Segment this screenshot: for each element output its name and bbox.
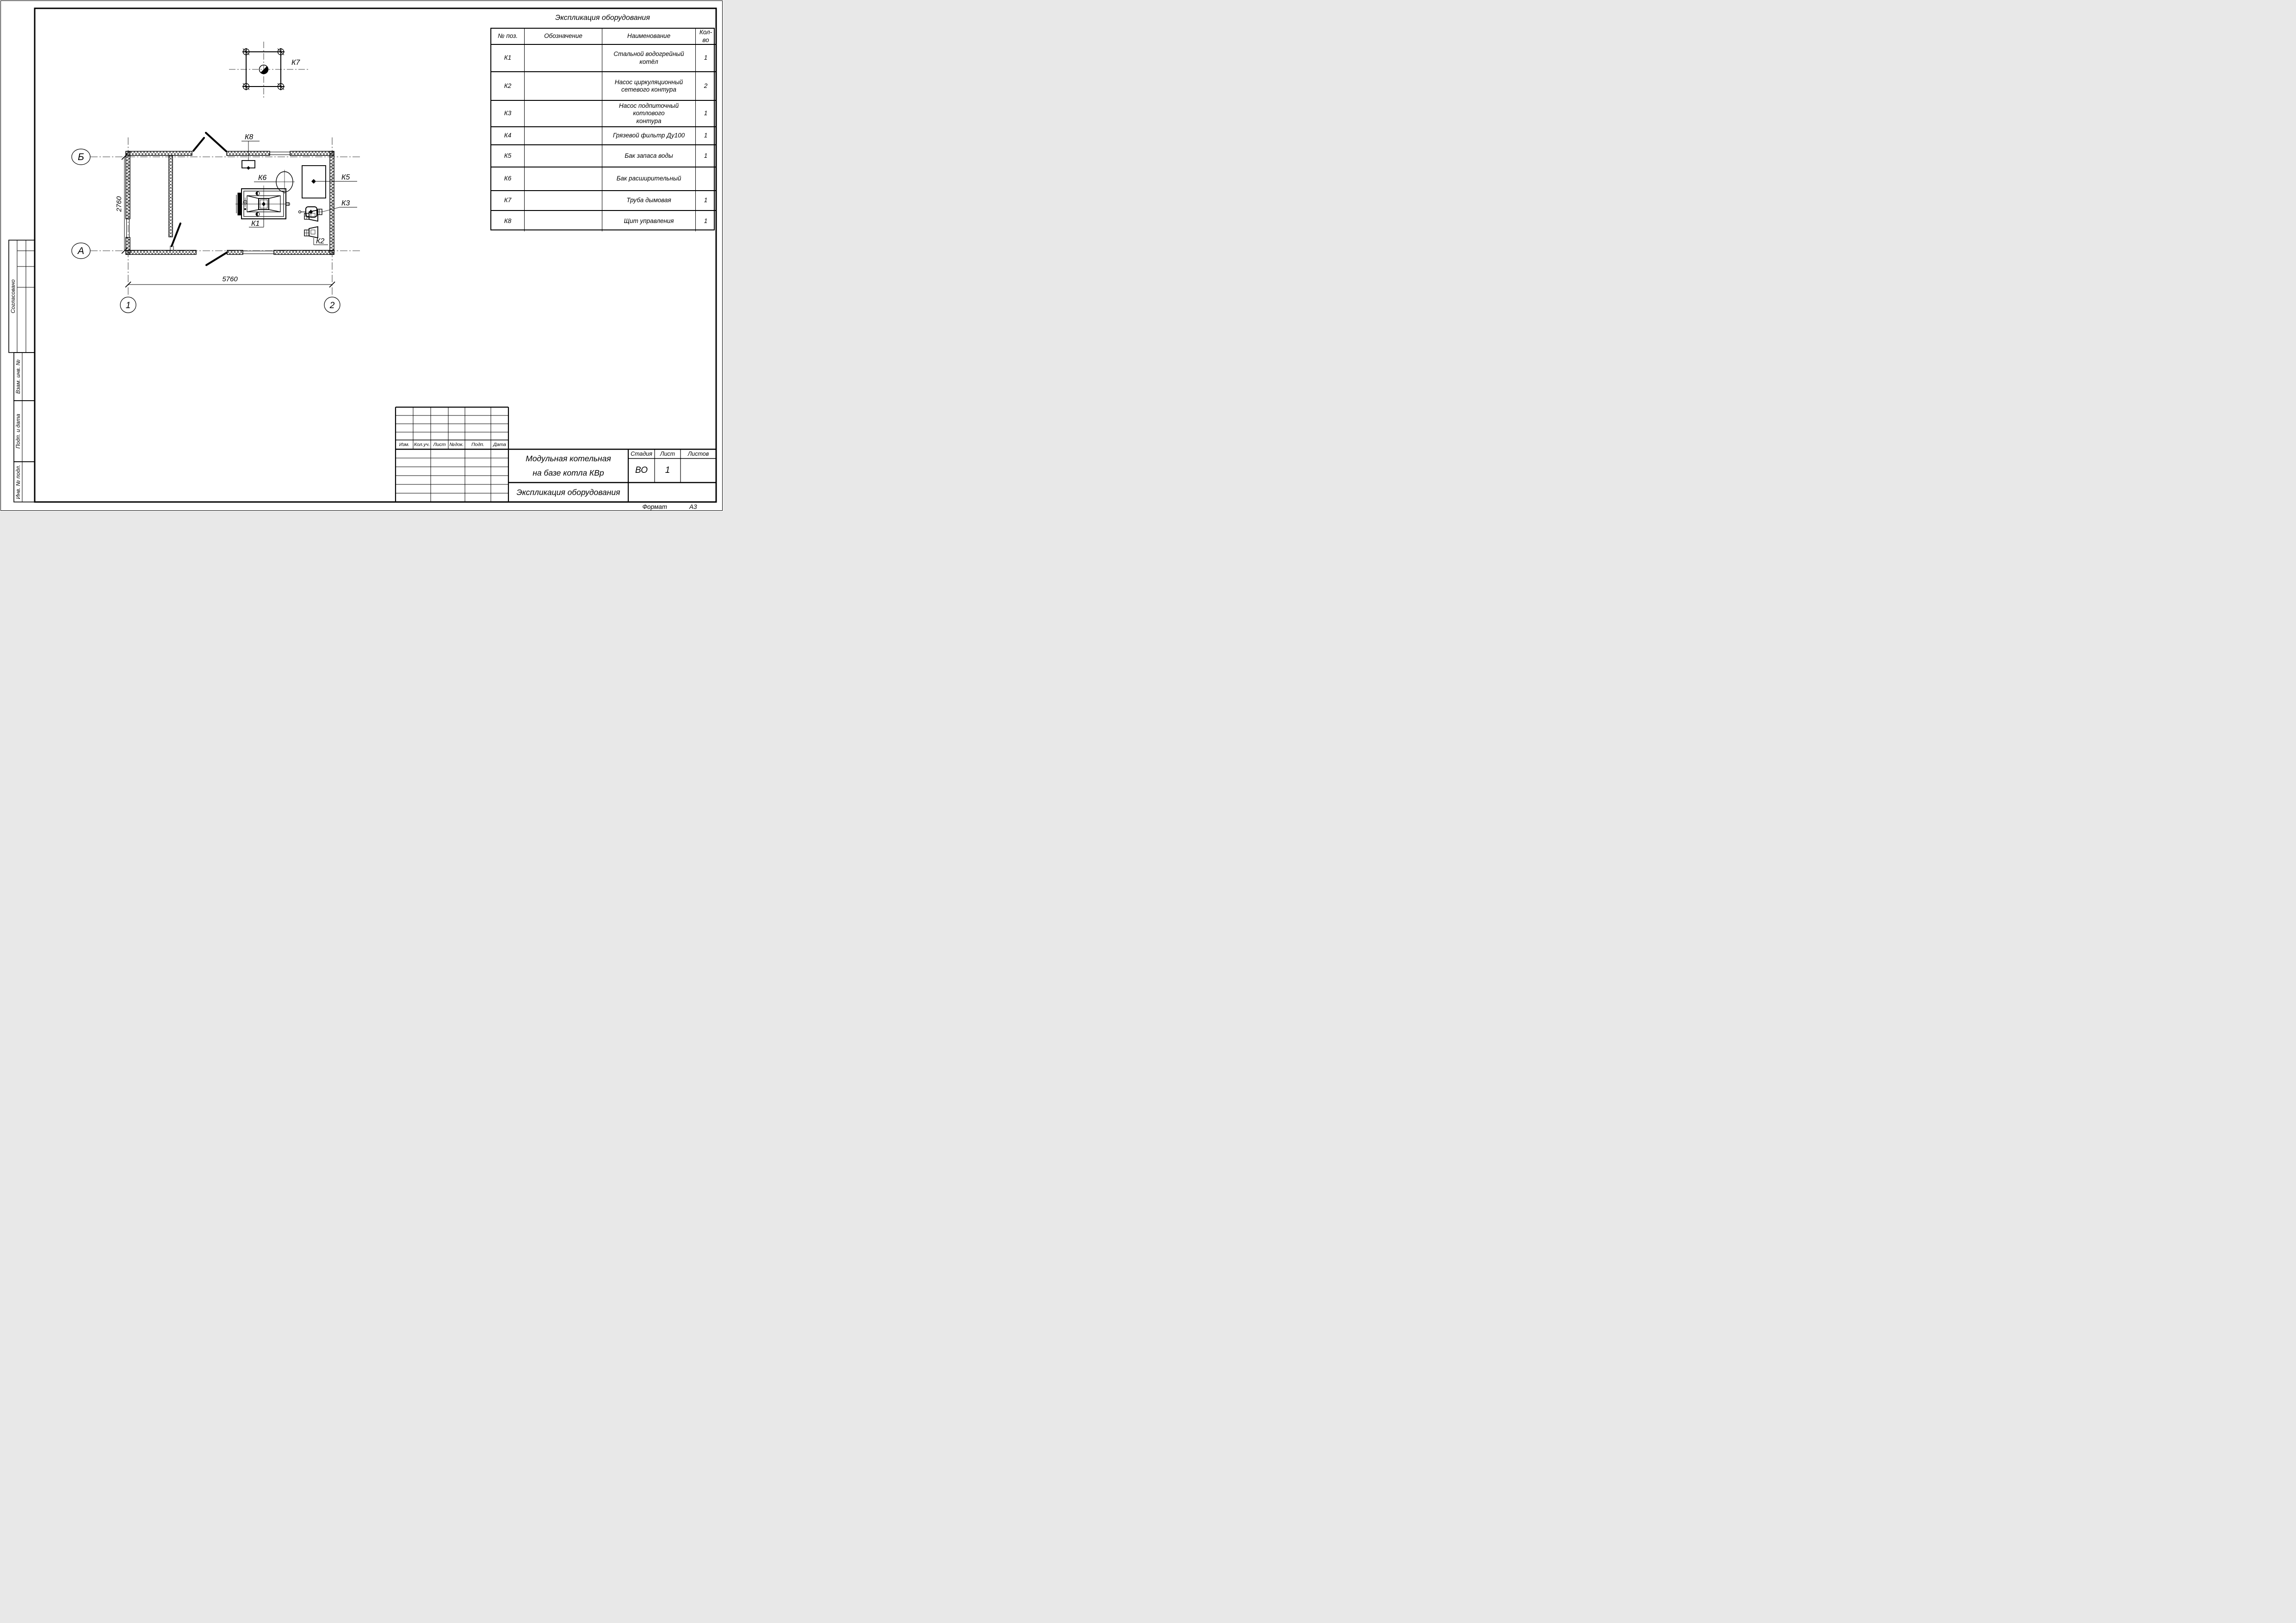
- table-row-designation: [525, 127, 602, 145]
- table-row-designation: [525, 191, 602, 211]
- svg-text:2760: 2760: [115, 196, 123, 212]
- table-row-qty: [696, 167, 716, 191]
- rev-col-koluch: Кол.уч.: [413, 440, 431, 449]
- table-row-pos: К3: [491, 101, 525, 127]
- table-row-name: Труба дымовая: [602, 191, 696, 211]
- axis-lines: [90, 137, 361, 296]
- stage-label: Стадия: [628, 449, 655, 458]
- stage-value: ВО: [628, 458, 655, 483]
- axis-label-b: Б: [78, 152, 84, 162]
- project-title-line2: на базе котла КВр: [532, 466, 604, 480]
- table-row-name: Насос циркуляционный сетевого контура: [602, 72, 696, 101]
- table-row-name: Насос подпиточный котлового контура: [602, 101, 696, 127]
- side-stamp-sign-date: Подп. и дата: [14, 401, 22, 462]
- side-stamp-agreed: Согласовано: [9, 240, 17, 353]
- table-row-qty: 1: [696, 45, 716, 72]
- col-header-pos: № поз.: [491, 29, 525, 45]
- table-row-designation: [525, 101, 602, 127]
- table-row-qty: 1: [696, 101, 716, 127]
- col-header-qty: Кол-во: [696, 29, 716, 45]
- table-row-qty: 2: [696, 72, 716, 101]
- table-row-designation: [525, 211, 602, 231]
- equipment-table: № поз. Обозначение Наименование Кол-во К…: [490, 28, 715, 230]
- table-row-name: Щит управления: [602, 211, 696, 231]
- table-row-pos: К1: [491, 45, 525, 72]
- axis-label-1: 1: [126, 301, 131, 310]
- axis-bubbles: [72, 149, 340, 313]
- table-row-name: Бак запаса воды: [602, 145, 696, 167]
- table-row-pos: К8: [491, 211, 525, 231]
- tag-k5: К5: [341, 173, 350, 181]
- tag-k2: К2: [316, 237, 324, 245]
- dim-2760: 2760: [115, 154, 127, 254]
- sheets-label: Листов: [681, 449, 716, 458]
- chimney-detail: [229, 42, 309, 99]
- format-footer: Формат А3: [625, 503, 715, 511]
- table-row-designation: [525, 72, 602, 101]
- tag-k7: К7: [291, 59, 300, 67]
- sheet-value: 1: [655, 458, 681, 483]
- floor-plan: Б А 1 2 2760 5760 К7: [72, 42, 361, 313]
- table-row-pos: К2: [491, 72, 525, 101]
- table-row-pos: К7: [491, 191, 525, 211]
- table-row-designation: [525, 167, 602, 191]
- rev-col-list: Лист: [431, 440, 448, 449]
- drawing-sheet: Б А 1 2 2760 5760 К7: [0, 0, 723, 511]
- rev-col-izm: Изм.: [396, 440, 413, 449]
- sheets-value: [681, 458, 716, 483]
- table-row-qty: 1: [696, 211, 716, 231]
- dim-5760: 5760: [125, 275, 335, 287]
- sheet-label: Лист: [655, 449, 681, 458]
- table-row-pos: К6: [491, 167, 525, 191]
- tag-k1: К1: [251, 220, 260, 228]
- rev-col-ndok: №док.: [448, 440, 465, 449]
- expansion-tank-k6: [254, 170, 295, 194]
- sheet-title: Экспликация оборудования: [508, 483, 628, 502]
- rev-col-podp: Подп.: [465, 440, 491, 449]
- table-row-qty: 1: [696, 191, 716, 211]
- table-row-pos: К5: [491, 145, 525, 167]
- project-title: Модульная котельная на базе котла КВр: [508, 450, 628, 482]
- walls: [126, 151, 334, 254]
- rev-col-data: Дата: [491, 440, 508, 449]
- col-header-name: Наименование: [602, 29, 696, 45]
- windows: [127, 152, 291, 254]
- format-label: Формат: [642, 503, 667, 511]
- table-row-qty: 1: [696, 145, 716, 167]
- side-stamp-replaced-inv: Взам. инв. №: [14, 353, 22, 401]
- project-title-line1: Модульная котельная: [526, 452, 611, 466]
- table-row-name: Бак расширительный: [602, 167, 696, 191]
- revision-header-row: Изм. Кол.уч. Лист №док. Подп. Дата: [396, 440, 508, 449]
- table-row-designation: [525, 145, 602, 167]
- svg-text:5760: 5760: [222, 275, 238, 283]
- table-row-designation: [525, 45, 602, 72]
- side-stamp-inv-original: Инв. № подл.: [14, 462, 22, 502]
- table-row-qty: 1: [696, 127, 716, 145]
- feed-pump-k3: [299, 207, 358, 217]
- format-value: А3: [689, 503, 697, 511]
- table-row-name: Грязевой фильтр Ду100: [602, 127, 696, 145]
- tag-k6: К6: [258, 174, 266, 182]
- tag-k8: К8: [245, 133, 253, 141]
- table-row-pos: К4: [491, 127, 525, 145]
- col-header-designation: Обозначение: [525, 29, 602, 45]
- axis-label-a: А: [77, 246, 84, 256]
- equipment-table-title: Экспликация оборудования: [490, 13, 715, 23]
- axis-label-2: 2: [329, 301, 335, 310]
- table-row-name: Стальной водогрейный котёл: [602, 45, 696, 72]
- tag-k3: К3: [341, 199, 350, 207]
